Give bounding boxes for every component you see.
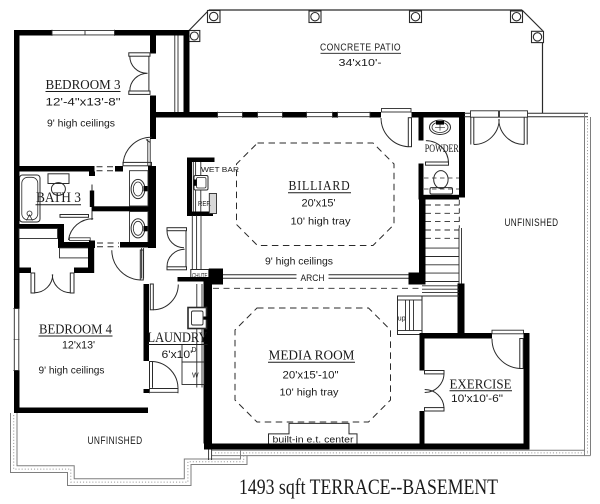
svg-text:POWDER: POWDER bbox=[425, 143, 459, 155]
svg-text:WET BAR: WET BAR bbox=[201, 165, 240, 174]
svg-text:BILLIARD: BILLIARD bbox=[289, 179, 351, 194]
svg-text:6'x10': 6'x10' bbox=[162, 349, 193, 361]
svg-text:10'x10'-6": 10'x10'-6" bbox=[451, 393, 503, 405]
svg-text:D: D bbox=[192, 347, 197, 354]
svg-text:10' high tray: 10' high tray bbox=[280, 387, 340, 398]
svg-text:EXERCISE: EXERCISE bbox=[450, 376, 512, 391]
svg-text:REF.: REF. bbox=[198, 199, 211, 208]
svg-text:BEDROOM 3: BEDROOM 3 bbox=[46, 78, 121, 93]
svg-text:BEDROOM 4: BEDROOM 4 bbox=[39, 322, 112, 337]
svg-text:ARCH: ARCH bbox=[301, 273, 325, 283]
svg-text:1493 sqft TERRACE--BASEMENT: 1493 sqft TERRACE--BASEMENT bbox=[239, 474, 498, 499]
svg-text:UNFINISHED: UNFINISHED bbox=[505, 217, 559, 229]
svg-text:CONCRETE PATIO: CONCRETE PATIO bbox=[320, 43, 401, 54]
svg-text:20'x15': 20'x15' bbox=[302, 198, 336, 210]
svg-text:W: W bbox=[192, 373, 199, 380]
svg-text:BATH 3: BATH 3 bbox=[36, 190, 81, 206]
svg-text:9' high ceilings: 9' high ceilings bbox=[47, 119, 115, 130]
svg-text:34'x10'-: 34'x10'- bbox=[339, 58, 382, 69]
svg-text:12'-4"x13'-8": 12'-4"x13'-8" bbox=[46, 97, 121, 109]
svg-text:MEDIA ROOM: MEDIA ROOM bbox=[269, 349, 356, 364]
svg-text:10' high tray: 10' high tray bbox=[291, 217, 352, 228]
svg-text:9' high ceilings: 9' high ceilings bbox=[265, 256, 333, 267]
svg-text:up: up bbox=[398, 315, 406, 322]
svg-text:12'x13': 12'x13' bbox=[62, 339, 95, 351]
svg-text:20'x15'-10": 20'x15'-10" bbox=[283, 370, 339, 382]
svg-text:9' high ceilings: 9' high ceilings bbox=[39, 365, 105, 376]
svg-text:built-in e.t. center: built-in e.t. center bbox=[273, 434, 354, 444]
svg-text:LAUNDRY: LAUNDRY bbox=[148, 330, 208, 346]
svg-text:UNFINISHED: UNFINISHED bbox=[88, 435, 143, 447]
